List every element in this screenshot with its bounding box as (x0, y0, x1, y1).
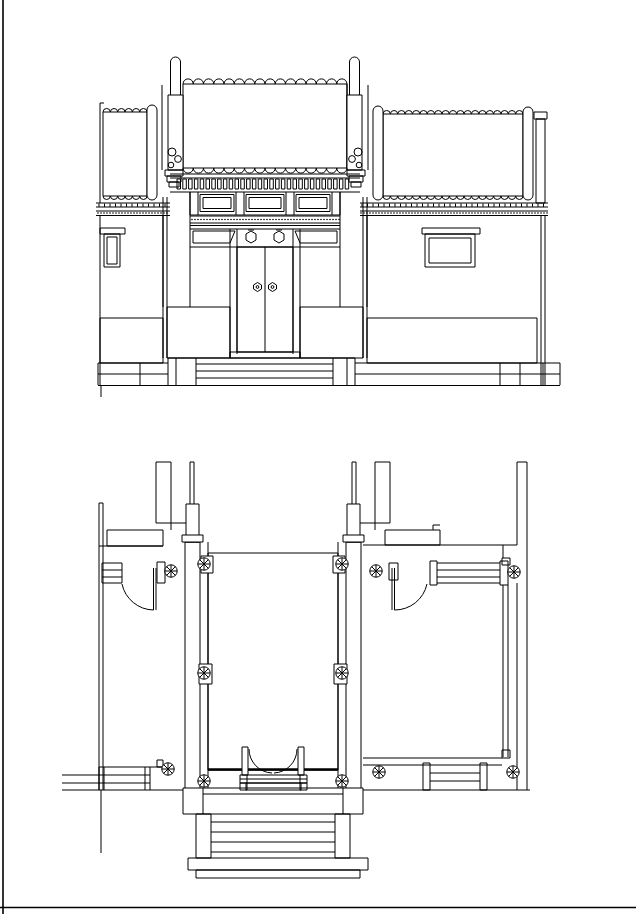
dot (540, 212, 542, 214)
dot (257, 219, 259, 221)
dentil (334, 179, 338, 189)
door-knocker (254, 283, 262, 292)
gate-roof-tiles (183, 84, 347, 168)
lattice-panel-3-inner (299, 198, 327, 209)
left-wall (96, 203, 170, 385)
dot (145, 212, 147, 214)
gate-door (230, 247, 300, 358)
north-wall-pier-right (385, 530, 440, 545)
dentil (183, 179, 187, 189)
right-roof-ridge-roll-right (523, 107, 533, 200)
ground-line (98, 385, 560, 397)
dentil (305, 179, 309, 189)
dentil (218, 179, 222, 189)
right-wall-end-post (536, 119, 545, 203)
right-wall (355, 203, 560, 385)
dot (408, 212, 410, 214)
dot (411, 212, 413, 214)
dot (191, 219, 193, 221)
column-symbol (162, 763, 174, 775)
right-room-north-window (430, 561, 508, 585)
gate-dado-left (167, 307, 230, 358)
right-wall-end-cap (534, 112, 547, 119)
dentil (339, 179, 343, 189)
paving (208, 553, 338, 770)
dot (363, 212, 365, 214)
dot (275, 219, 277, 221)
passage-inner-faces (208, 542, 338, 788)
dot (384, 212, 386, 214)
plan-right-room (363, 545, 530, 790)
dot (516, 212, 518, 214)
dentil (258, 179, 262, 189)
gate-roof-gable-edges (162, 84, 368, 170)
door-pin (246, 231, 256, 243)
dentil (310, 179, 314, 189)
north-projection-right-outer (360, 462, 390, 530)
dentil (206, 179, 210, 189)
column-symbol (165, 565, 177, 577)
dot (332, 219, 334, 221)
dot (209, 219, 211, 221)
right-door-leaf (392, 568, 395, 610)
dot (242, 219, 244, 221)
dot (432, 212, 434, 214)
right-wall-eave-dots (360, 212, 548, 214)
dot (489, 212, 491, 214)
plan-north-projections (156, 462, 527, 545)
door-pin (274, 231, 284, 243)
south-platform-detail (203, 788, 343, 814)
dotted-band-dots (191, 219, 340, 221)
right-roof-drip-tiles (383, 196, 523, 199)
plan-north-walls (99, 525, 517, 565)
cad-sheet (0, 0, 636, 914)
passage-wall-cap-right (343, 535, 364, 542)
north-projection-right-inner (352, 462, 356, 504)
dot (525, 212, 527, 214)
north-wall-pier-left (107, 530, 163, 546)
dentil (281, 179, 285, 189)
dot (118, 212, 120, 214)
dot (528, 212, 530, 214)
dot (456, 212, 458, 214)
dot (378, 212, 380, 214)
dot (194, 219, 196, 221)
dot (245, 219, 247, 221)
plan-gate-passage (182, 535, 364, 788)
step-landing (188, 858, 368, 870)
dot (459, 212, 461, 214)
dot (127, 212, 129, 214)
dot (396, 212, 398, 214)
dot (381, 212, 383, 214)
dot (465, 212, 467, 214)
dot (109, 212, 111, 214)
dot (429, 212, 431, 214)
gate-door-post-right (298, 747, 304, 775)
dentil (345, 179, 349, 189)
dot (272, 219, 274, 221)
dot (112, 212, 114, 214)
lattice-panel-2-inner (249, 198, 281, 209)
left-door-swing-arc (122, 584, 154, 610)
dot (534, 212, 536, 214)
dentil (235, 179, 239, 189)
dot (157, 212, 159, 214)
right-roof-tiles (383, 114, 523, 196)
step-landing-lower (196, 870, 360, 878)
left-door-jamb (157, 562, 165, 583)
gate-rafter-dentils (177, 179, 349, 189)
plan-view (62, 462, 530, 878)
dot (130, 212, 132, 214)
dot (486, 212, 488, 214)
dot (206, 219, 208, 221)
dot (203, 219, 205, 221)
right-window-frame (425, 234, 475, 267)
dot (480, 212, 482, 214)
door-knocker (269, 283, 277, 292)
dot (387, 212, 389, 214)
dot (326, 219, 328, 221)
dot (278, 219, 280, 221)
dentil (316, 179, 320, 189)
dot (124, 212, 126, 214)
dot (531, 212, 533, 214)
dot (323, 219, 325, 221)
gate-roof (162, 57, 368, 192)
gate-door-post-left (242, 747, 248, 775)
gate-roof-tile-crests (183, 79, 347, 84)
dot (154, 212, 156, 214)
dot (375, 212, 377, 214)
left-window-inner (107, 237, 117, 264)
dot (405, 212, 407, 214)
dot (522, 212, 524, 214)
column-symbol (336, 558, 348, 570)
dot (136, 212, 138, 214)
dot (483, 212, 485, 214)
dentil (293, 179, 297, 189)
dot (197, 219, 199, 221)
dentil (247, 179, 251, 189)
right-room-east-wall (517, 545, 527, 790)
dentil (322, 179, 326, 189)
dot (115, 212, 117, 214)
dot (103, 212, 105, 214)
gate-dado-right (300, 307, 363, 358)
dot (148, 212, 150, 214)
dot (495, 212, 497, 214)
dentil (189, 179, 193, 189)
brick-dados (100, 307, 537, 363)
dot (239, 219, 241, 221)
left-window-lintel (100, 228, 125, 234)
dot (133, 212, 135, 214)
column-symbol (508, 566, 520, 578)
right-wall-edges (367, 215, 545, 385)
north-projection-left-outer (156, 462, 186, 530)
right-door-swing-arc (395, 584, 428, 610)
step-stringer-left (196, 814, 211, 858)
dot (329, 219, 331, 221)
east-wall-projection (517, 462, 527, 545)
dot (305, 219, 307, 221)
dot (308, 219, 310, 221)
dot (462, 212, 464, 214)
dot (311, 219, 313, 221)
dot (299, 219, 301, 221)
dot (215, 219, 217, 221)
dot (402, 212, 404, 214)
dot (393, 212, 395, 214)
platform-steps (196, 364, 333, 378)
dot (507, 212, 509, 214)
right-roof-tile-crests (383, 111, 523, 114)
dot (151, 212, 153, 214)
right-room-south-window (423, 763, 487, 790)
right-window-lintel (422, 228, 480, 234)
dot (166, 212, 168, 214)
dot (498, 212, 500, 214)
dot (399, 212, 401, 214)
dot (287, 219, 289, 221)
dot (293, 219, 295, 221)
dot (221, 219, 223, 221)
south-platform (183, 788, 363, 814)
left-roof-ridge-roll (147, 105, 157, 200)
left-wall-plinth (98, 363, 168, 385)
dot (230, 219, 232, 221)
threshold-step (246, 783, 301, 790)
right-room-south-wall (363, 750, 530, 790)
dot (254, 219, 256, 221)
dot (233, 219, 235, 221)
elevation-view (96, 57, 560, 397)
left-room-north-window (102, 563, 122, 583)
dot (414, 212, 416, 214)
left-roof-drip-tiles (103, 196, 147, 199)
right-wall-roof (373, 106, 547, 203)
dot (417, 212, 419, 214)
dot (227, 219, 229, 221)
left-wall-edges (100, 215, 163, 385)
dotted-band-rails (190, 216, 340, 226)
north-projection-left-inner (190, 462, 194, 504)
page-border (0, 0, 636, 914)
dot (139, 212, 141, 214)
plan-column-symbols (162, 558, 520, 787)
dentil (270, 179, 274, 189)
dot (290, 219, 292, 221)
dot (435, 212, 437, 214)
dot (501, 212, 503, 214)
column-symbol (336, 667, 348, 679)
right-wall-plinth (355, 363, 560, 385)
dot (251, 219, 253, 221)
gate-panel-band (190, 192, 340, 215)
dot (163, 212, 165, 214)
dot (302, 219, 304, 221)
dot (266, 219, 268, 221)
column-symbol (198, 667, 210, 679)
dot (438, 212, 440, 214)
column-symbol (336, 775, 348, 787)
dot (160, 212, 162, 214)
dot (426, 212, 428, 214)
dentil (276, 179, 280, 189)
dentil (241, 179, 245, 189)
dot (263, 219, 265, 221)
ridge-ornament-right (347, 95, 362, 170)
dentil (229, 179, 233, 189)
platform-right-block (333, 358, 355, 385)
step-treads (211, 822, 335, 852)
left-window-frame (104, 234, 120, 267)
dentil (252, 179, 256, 189)
dot (546, 212, 548, 214)
ridge-ornament-left-top (171, 57, 181, 99)
column-symbol (198, 558, 210, 570)
dot (510, 212, 512, 214)
gate-dotted-band (190, 216, 340, 226)
dentil (264, 179, 268, 189)
dentil (194, 179, 198, 189)
right-wall-eave-ticks (362, 204, 544, 207)
right-door-jamb (389, 563, 398, 580)
dot (248, 219, 250, 221)
dot (390, 212, 392, 214)
gate-platform (98, 358, 560, 397)
dot (284, 219, 286, 221)
lattice-panel-1-inner (203, 198, 231, 209)
dot (296, 219, 298, 221)
dot (468, 212, 470, 214)
dot (260, 219, 262, 221)
dot (360, 212, 362, 214)
dentil (287, 179, 291, 189)
left-wall-eave-dots (97, 212, 168, 214)
dot (537, 212, 539, 214)
left-roof-tiles (103, 112, 147, 196)
dot (224, 219, 226, 221)
dot (471, 212, 473, 214)
dot (441, 212, 443, 214)
threshold-detail (240, 775, 307, 783)
lintel-panel-left (193, 231, 235, 243)
dot (212, 219, 214, 221)
dot (335, 219, 337, 221)
dentil (223, 179, 227, 189)
step-stringer-right (335, 814, 350, 858)
dot (142, 212, 144, 214)
passage-wall-cap-left (182, 535, 203, 542)
dot (492, 212, 494, 214)
right-wall-dado (367, 318, 537, 363)
left-wall-eave-ticks (99, 204, 165, 207)
column-symbol (198, 775, 210, 787)
dot (366, 212, 368, 214)
dot (444, 212, 446, 214)
dot (218, 219, 220, 221)
left-wall-roof (100, 103, 157, 203)
plan-south-steps (183, 788, 368, 878)
dot (543, 212, 545, 214)
right-roof-ridge-roll-left (373, 106, 383, 200)
dot (477, 212, 479, 214)
dot (513, 212, 515, 214)
dentil (299, 179, 303, 189)
dot (200, 219, 202, 221)
dentil (200, 179, 204, 189)
column-symbol (373, 766, 385, 778)
dot (314, 219, 316, 221)
lintel-panel-right (295, 231, 337, 243)
left-roof-tile-crests (103, 109, 147, 112)
dot (97, 212, 99, 214)
dot (369, 212, 371, 214)
right-window-inner (429, 238, 471, 263)
left-wall-dado (100, 318, 163, 363)
dot (281, 219, 283, 221)
platform-left-block (168, 358, 196, 385)
dot (423, 212, 425, 214)
right-room-east-face (503, 585, 508, 757)
dot (450, 212, 452, 214)
dot (269, 219, 271, 221)
dot (372, 212, 374, 214)
door-sill (230, 352, 300, 358)
ridge-ornament-right-top (350, 57, 360, 99)
dot (121, 212, 123, 214)
dot (447, 212, 449, 214)
dot (317, 219, 319, 221)
plan-left-room (62, 503, 183, 853)
ridge-ornament-left (168, 95, 183, 170)
gate-roof-drip-tiles (183, 168, 347, 173)
left-room-west-wall (99, 503, 103, 853)
gate-lintel (190, 229, 340, 247)
dot (453, 212, 455, 214)
dot (236, 219, 238, 221)
left-door-leaf (154, 568, 157, 610)
column-symbol (507, 766, 519, 778)
dot (320, 219, 322, 221)
dentil (212, 179, 216, 189)
column-symbol (370, 565, 382, 577)
cad-drawing (0, 0, 636, 914)
dentil (328, 179, 332, 189)
dot (504, 212, 506, 214)
dot (420, 212, 422, 214)
dot (519, 212, 521, 214)
dot (474, 212, 476, 214)
dot (106, 212, 108, 214)
door-pins (246, 230, 284, 243)
dot (100, 212, 102, 214)
